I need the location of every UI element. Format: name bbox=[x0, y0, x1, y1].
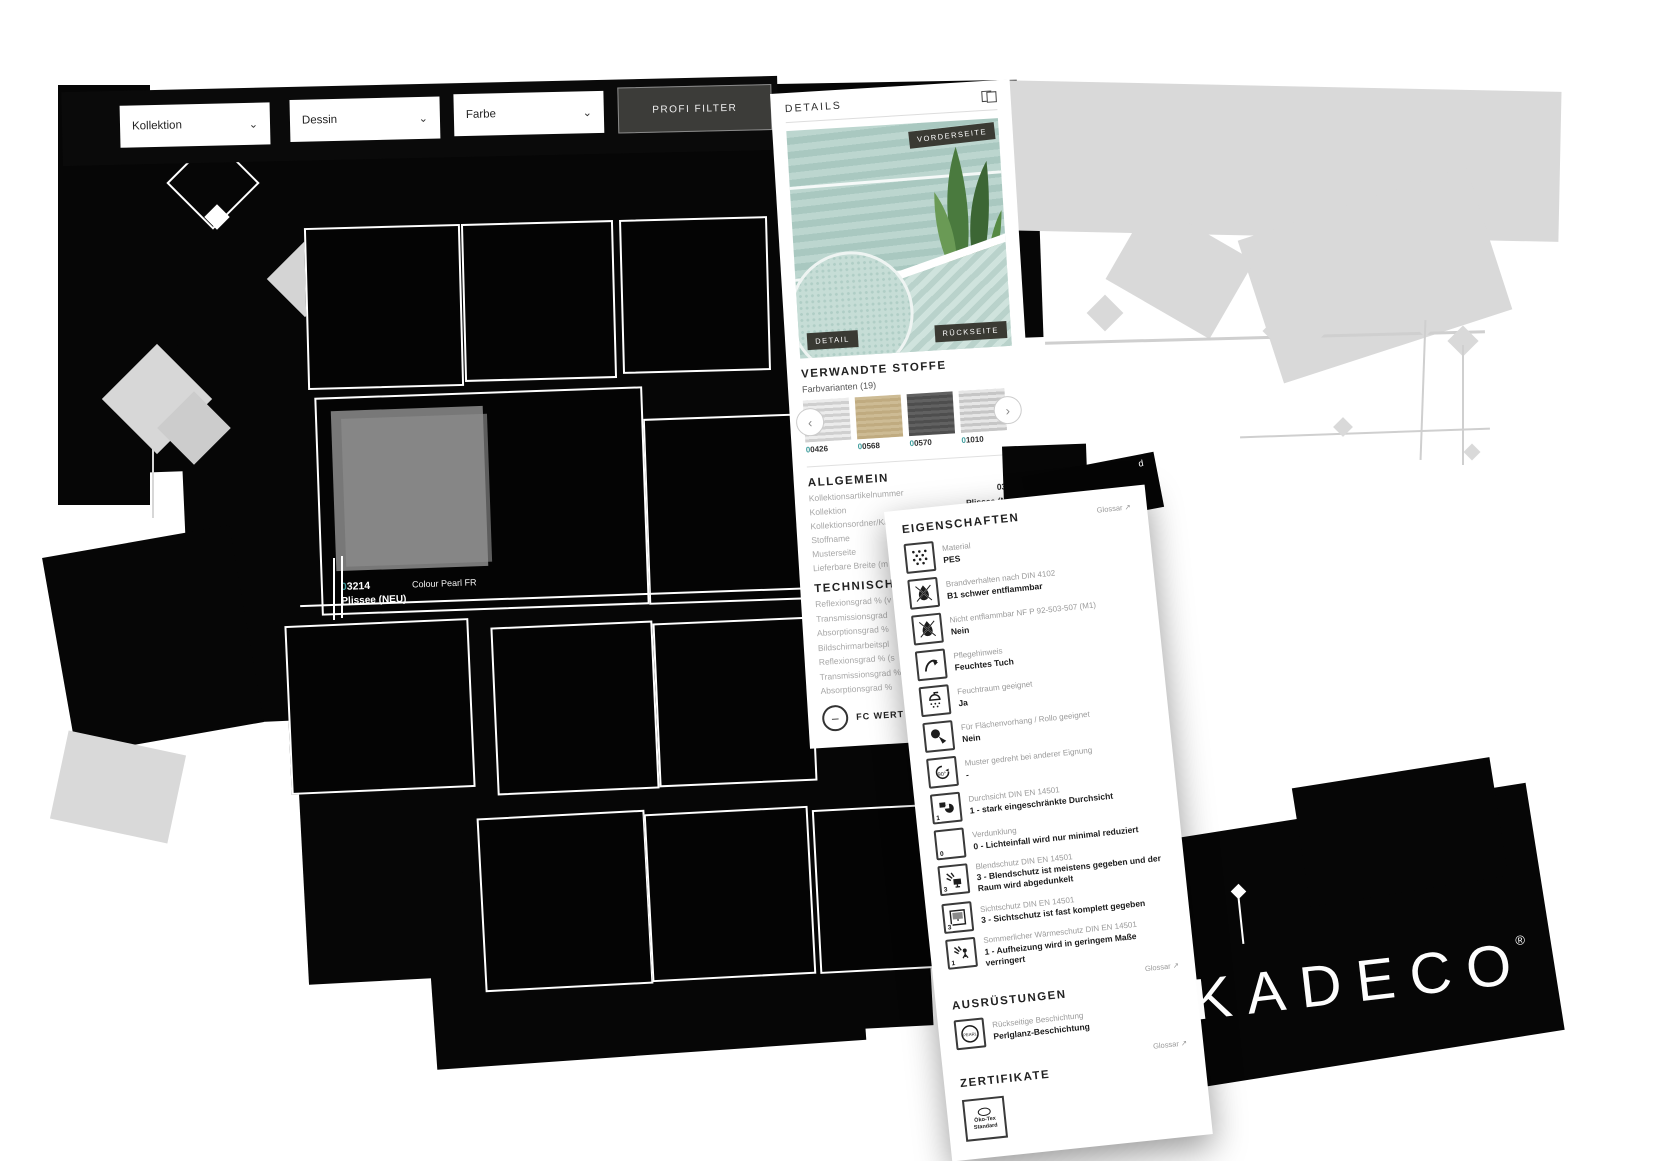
fabric-photo: VORDERSEITE DETAIL RÜCKSEITE bbox=[786, 118, 1012, 359]
chevron-right-icon[interactable]: › bbox=[993, 395, 1023, 425]
kollektion-dropdown-label: Kollektion bbox=[132, 119, 182, 132]
glossar-link[interactable]: Glossar ↗ bbox=[1096, 502, 1131, 515]
profi-filter-label: PROFI FILTER bbox=[652, 102, 737, 115]
details-title: DETAILS bbox=[785, 100, 843, 115]
chevron-down-icon: ⌄ bbox=[419, 111, 429, 124]
fabric-tile[interactable] bbox=[284, 618, 475, 795]
fabric-code-rest: 3214 bbox=[347, 580, 371, 593]
color-variant[interactable]: 00570 bbox=[907, 391, 956, 448]
transparency-icon: 1 bbox=[930, 792, 963, 825]
rating-badge: 1 bbox=[935, 815, 941, 823]
glitch-line bbox=[1462, 345, 1464, 465]
color-variant-image bbox=[855, 395, 903, 440]
info-label: Kollektionsartikelnummer bbox=[808, 488, 903, 504]
cert-label: Standard bbox=[974, 1122, 998, 1131]
external-link-icon: ↗ bbox=[1172, 961, 1179, 971]
color-variant[interactable]: 00568 bbox=[855, 395, 904, 452]
dessin-dropdown[interactable]: Dessin ⌄ bbox=[289, 97, 440, 142]
glitch-shape bbox=[50, 731, 186, 844]
details-header: DETAILS bbox=[785, 90, 998, 123]
color-variant-row: ‹ 00426 00568 00570 01010 › bbox=[803, 388, 1018, 459]
fabric-tile[interactable] bbox=[644, 806, 817, 982]
dimout-icon: 0 bbox=[934, 827, 967, 860]
glitch-line bbox=[152, 436, 154, 518]
rating-badge: 1 bbox=[950, 960, 956, 968]
farbe-dropdown-label: Farbe bbox=[466, 108, 496, 121]
glitch-diamond bbox=[1464, 444, 1481, 461]
glossar-label: Glossar bbox=[1144, 962, 1171, 974]
kollektion-dropdown[interactable]: Kollektion ⌄ bbox=[120, 102, 271, 147]
glitch-line bbox=[1420, 320, 1427, 460]
glitch-shape bbox=[42, 525, 264, 755]
farbe-dropdown[interactable]: Farbe ⌄ bbox=[453, 91, 604, 136]
fabric-tile-selected[interactable]: 03214 Colour Pearl FR Plissee (NEU) bbox=[314, 386, 649, 615]
info-label: Musterseite bbox=[812, 547, 856, 560]
chevron-down-icon: ⌄ bbox=[582, 106, 592, 119]
external-link-icon: ↗ bbox=[1124, 502, 1131, 512]
color-variant-image bbox=[907, 391, 955, 436]
variant-code-rest: 1010 bbox=[966, 435, 984, 445]
glitch-line bbox=[1240, 428, 1490, 439]
fabric-tile[interactable] bbox=[652, 617, 817, 788]
rating-badge: 3 bbox=[943, 886, 949, 894]
dessin-dropdown-label: Dessin bbox=[302, 114, 337, 127]
gallery-icon[interactable] bbox=[981, 90, 997, 103]
fabric-tile[interactable] bbox=[619, 216, 771, 374]
damp-room-icon bbox=[919, 684, 952, 717]
fragment-text: d bbox=[1137, 458, 1144, 469]
panel-roller-icon bbox=[922, 720, 955, 753]
eigenschaften-panel: EIGENSCHAFTEN Glossar ↗ MaterialPES Bran… bbox=[884, 485, 1213, 1161]
external-link-icon: ↗ bbox=[1180, 1038, 1187, 1048]
info-label: Stoffname bbox=[811, 533, 850, 545]
eigenschaften-title: EIGENSCHAFTEN bbox=[901, 512, 1020, 536]
rating-badge: 3 bbox=[947, 925, 953, 933]
glossar-label: Glossar bbox=[1153, 1039, 1180, 1051]
pearl-coating-icon: PEARL bbox=[954, 1017, 987, 1050]
heat-icon: 1 bbox=[945, 937, 978, 970]
rotate-90-icon: 90° bbox=[926, 756, 959, 789]
glitch-line bbox=[341, 556, 343, 618]
variant-code-rest: 0570 bbox=[914, 438, 932, 448]
fabric-tile[interactable] bbox=[643, 413, 813, 605]
variant-code-rest: 0426 bbox=[810, 444, 828, 454]
fabric-tile[interactable] bbox=[304, 224, 464, 390]
chevron-down-icon: ⌄ bbox=[249, 117, 259, 130]
material-icon bbox=[903, 541, 936, 574]
rating-badge: 0 bbox=[939, 851, 945, 859]
registered-mark: ® bbox=[1514, 932, 1525, 948]
oeko-tex-icon: Öko-Tex Standard bbox=[962, 1096, 1008, 1142]
kadeco-stoff-finder-app: Kollektion ⌄ Dessin ⌄ Farbe ⌄ PROFI FILT… bbox=[0, 0, 1673, 1161]
variant-code-rest: 0568 bbox=[862, 441, 880, 451]
non-flammable-icon bbox=[911, 613, 944, 646]
info-label: Kollektion bbox=[809, 505, 846, 517]
glitch-diamond bbox=[1087, 295, 1124, 332]
privacy-icon: 3 bbox=[941, 902, 974, 935]
fabric-tile[interactable] bbox=[477, 810, 654, 993]
svg-text:PEARL: PEARL bbox=[963, 1031, 978, 1037]
glossar-label: Glossar bbox=[1096, 503, 1123, 515]
flammability-icon bbox=[907, 577, 940, 610]
property-value: PES bbox=[943, 552, 972, 566]
glossar-link[interactable]: Glossar ↗ bbox=[1144, 961, 1179, 974]
profi-filter-button[interactable]: PROFI FILTER bbox=[617, 84, 772, 133]
fabric-tile[interactable] bbox=[490, 621, 659, 796]
glossar-link[interactable]: Glossar ↗ bbox=[1153, 1038, 1188, 1051]
glitch-line bbox=[333, 558, 335, 620]
fabric-tile[interactable] bbox=[461, 220, 617, 382]
minus-circle-icon: – bbox=[821, 704, 849, 732]
fabric-name: Colour Pearl FR bbox=[412, 577, 477, 589]
fabric-code: 03214 bbox=[341, 580, 371, 593]
detail-badge[interactable]: DETAIL bbox=[807, 330, 859, 350]
care-wipe-icon bbox=[915, 648, 948, 681]
info-label: Lieferbare Breite (m bbox=[813, 559, 889, 574]
svg-text:90°: 90° bbox=[938, 771, 947, 778]
glare-icon: 3 bbox=[937, 863, 970, 896]
fabric-swatch-ghost bbox=[341, 414, 492, 567]
